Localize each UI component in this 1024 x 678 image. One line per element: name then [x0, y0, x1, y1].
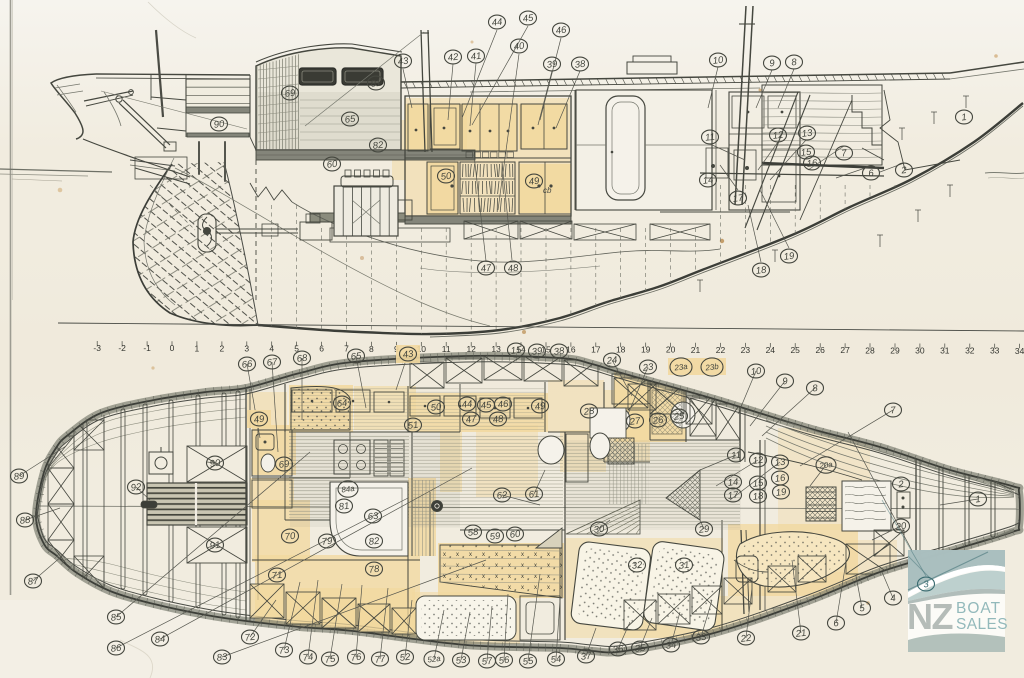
svg-text:43: 43: [402, 349, 415, 361]
svg-text:62: 62: [496, 490, 509, 502]
svg-text:81: 81: [338, 501, 350, 513]
svg-text:54: 54: [550, 654, 562, 666]
svg-text:45: 45: [480, 400, 493, 412]
svg-text:92: 92: [130, 482, 143, 494]
svg-text:65: 65: [350, 351, 363, 363]
svg-text:63: 63: [367, 511, 380, 523]
svg-text:83: 83: [216, 652, 229, 664]
svg-text:45: 45: [522, 13, 535, 25]
svg-text:cb: cb: [543, 186, 552, 195]
svg-text:82: 82: [372, 140, 385, 152]
svg-text:20: 20: [666, 345, 676, 355]
svg-text:17: 17: [732, 193, 745, 205]
svg-text:84: 84: [154, 634, 166, 646]
svg-text:47: 47: [480, 263, 493, 275]
svg-text:10: 10: [712, 55, 725, 67]
svg-text:89: 89: [13, 471, 26, 483]
svg-text:24: 24: [766, 345, 776, 355]
svg-text:17: 17: [591, 345, 601, 355]
svg-text:19: 19: [783, 251, 796, 263]
svg-text:60: 60: [326, 159, 339, 171]
svg-text:87: 87: [27, 576, 40, 588]
svg-text:1: 1: [195, 343, 200, 353]
svg-text:19: 19: [775, 487, 788, 499]
svg-text:36: 36: [612, 644, 625, 656]
svg-text:69: 69: [278, 459, 291, 471]
svg-text:23: 23: [641, 362, 655, 374]
svg-text:28: 28: [865, 345, 875, 355]
svg-text:14: 14: [702, 175, 714, 187]
svg-text:44: 44: [461, 399, 473, 411]
svg-text:79: 79: [321, 536, 334, 548]
svg-text:16: 16: [774, 473, 787, 485]
svg-text:88: 88: [19, 515, 32, 527]
svg-text:44: 44: [491, 17, 503, 29]
svg-text:4: 4: [269, 344, 274, 354]
svg-text:22: 22: [739, 633, 753, 645]
svg-text:BOAT: BOAT: [956, 600, 1001, 617]
svg-text:73: 73: [278, 645, 291, 657]
svg-text:90: 90: [213, 119, 226, 131]
svg-text:-2: -2: [118, 343, 126, 353]
svg-text:24: 24: [605, 355, 618, 367]
svg-text:13: 13: [774, 457, 787, 469]
svg-text:65: 65: [344, 114, 357, 126]
svg-text:75: 75: [324, 654, 337, 666]
svg-text:23: 23: [741, 345, 751, 355]
svg-text:52: 52: [399, 652, 412, 664]
svg-text:15: 15: [752, 478, 765, 490]
svg-text:49: 49: [253, 414, 266, 426]
svg-text:46: 46: [555, 25, 568, 37]
svg-text:NZ: NZ: [907, 596, 952, 637]
svg-text:33: 33: [990, 346, 1000, 356]
svg-text:3: 3: [244, 343, 249, 353]
svg-text:53: 53: [455, 655, 468, 667]
svg-text:13: 13: [801, 128, 814, 140]
svg-text:74: 74: [302, 652, 314, 664]
svg-text:0: 0: [170, 343, 175, 353]
svg-text:20: 20: [894, 521, 908, 533]
svg-text:11: 11: [705, 132, 716, 144]
svg-text:8: 8: [369, 344, 374, 354]
svg-text:60: 60: [509, 529, 522, 541]
svg-text:77: 77: [374, 654, 387, 666]
svg-text:39: 39: [546, 59, 559, 71]
svg-text:32: 32: [631, 560, 644, 572]
svg-text:21: 21: [691, 345, 701, 355]
svg-text:37: 37: [580, 651, 593, 663]
svg-text:30: 30: [915, 346, 925, 356]
svg-text:70: 70: [284, 531, 297, 543]
svg-text:47: 47: [465, 414, 478, 426]
svg-text:21: 21: [794, 628, 807, 640]
svg-text:58: 58: [467, 527, 480, 539]
svg-text:48: 48: [507, 263, 520, 275]
svg-text:22: 22: [716, 345, 726, 355]
svg-text:19: 19: [641, 345, 651, 355]
svg-text:42: 42: [447, 52, 460, 64]
svg-text:91: 91: [209, 540, 221, 552]
svg-text:26: 26: [651, 415, 665, 427]
svg-text:15: 15: [800, 147, 813, 159]
svg-text:49: 49: [528, 176, 541, 188]
svg-text:28: 28: [582, 406, 596, 418]
svg-text:18: 18: [616, 345, 626, 355]
svg-text:17: 17: [727, 490, 740, 502]
svg-text:46: 46: [497, 399, 510, 411]
svg-text:14: 14: [727, 477, 739, 489]
svg-text:85: 85: [110, 612, 123, 624]
svg-text:12: 12: [752, 455, 765, 467]
svg-text:27: 27: [628, 416, 642, 428]
svg-text:51: 51: [407, 420, 419, 432]
svg-text:66: 66: [241, 359, 254, 371]
svg-text:67: 67: [266, 357, 279, 369]
svg-text:16: 16: [806, 158, 819, 170]
svg-text:15: 15: [510, 345, 523, 357]
svg-text:27: 27: [840, 345, 850, 355]
svg-text:SALES: SALES: [956, 616, 1008, 633]
svg-text:31: 31: [678, 560, 690, 572]
svg-text:81: 81: [370, 78, 382, 90]
svg-text:40: 40: [513, 41, 526, 53]
svg-text:35: 35: [634, 643, 647, 655]
svg-text:50: 50: [440, 171, 453, 183]
svg-text:69: 69: [284, 88, 297, 100]
svg-text:76: 76: [350, 652, 363, 664]
svg-text:18: 18: [755, 265, 768, 277]
svg-text:6: 6: [319, 344, 324, 354]
svg-text:86: 86: [110, 643, 123, 655]
svg-text:61: 61: [528, 489, 540, 501]
svg-text:12: 12: [772, 130, 785, 142]
svg-text:52a: 52a: [427, 654, 442, 665]
svg-text:68: 68: [296, 353, 309, 365]
svg-text:-3: -3: [93, 343, 101, 353]
svg-text:2: 2: [220, 343, 225, 353]
svg-text:11: 11: [731, 450, 742, 462]
svg-text:33: 33: [695, 632, 708, 644]
svg-text:41: 41: [470, 51, 482, 63]
svg-text:38: 38: [574, 59, 587, 71]
svg-text:31: 31: [940, 346, 950, 356]
svg-text:23a: 23a: [673, 362, 689, 373]
svg-text:64: 64: [336, 398, 348, 410]
svg-text:43: 43: [397, 56, 410, 68]
svg-text:18: 18: [752, 491, 765, 503]
svg-text:82: 82: [368, 536, 381, 548]
svg-text:32: 32: [965, 346, 975, 356]
svg-text:49: 49: [534, 401, 547, 413]
svg-text:25: 25: [672, 411, 686, 423]
svg-text:38: 38: [553, 346, 566, 358]
svg-text:34: 34: [1015, 346, 1024, 356]
svg-text:39: 39: [531, 346, 544, 358]
svg-text:29: 29: [890, 345, 900, 355]
svg-text:72: 72: [244, 632, 257, 644]
svg-text:78: 78: [368, 564, 381, 576]
svg-text:29: 29: [697, 524, 711, 536]
svg-text:23b: 23b: [704, 362, 720, 373]
svg-text:-1: -1: [143, 343, 151, 353]
svg-text:57: 57: [481, 656, 494, 668]
svg-text:20a: 20a: [818, 460, 834, 471]
svg-text:56: 56: [498, 655, 511, 667]
svg-text:25: 25: [790, 345, 800, 355]
svg-text:34: 34: [665, 640, 677, 652]
svg-text:26: 26: [815, 345, 825, 355]
svg-text:55: 55: [522, 656, 535, 668]
svg-text:48: 48: [492, 414, 505, 426]
svg-text:71: 71: [271, 570, 283, 582]
svg-text:59: 59: [489, 531, 502, 543]
svg-text:50: 50: [430, 402, 443, 414]
svg-text:30: 30: [593, 524, 606, 536]
svg-text:84a: 84a: [341, 484, 356, 495]
svg-text:10: 10: [750, 366, 763, 378]
svg-text:90: 90: [209, 458, 222, 470]
